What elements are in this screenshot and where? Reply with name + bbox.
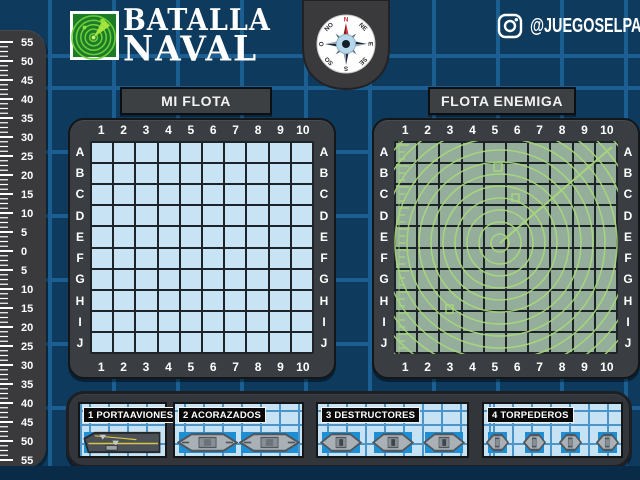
- cell-H8[interactable]: [551, 291, 571, 310]
- cell-G2[interactable]: [418, 270, 438, 289]
- cell-B1[interactable]: [396, 164, 416, 183]
- cell-E6[interactable]: [203, 227, 223, 246]
- col-label: 3: [135, 360, 157, 374]
- bottom-band: [0, 466, 640, 480]
- instagram-handle-text: @JUEGOSELPATO: [530, 15, 640, 38]
- cell-A3[interactable]: [440, 143, 460, 162]
- cell-E8[interactable]: [551, 227, 571, 246]
- cell-H9[interactable]: [574, 291, 594, 310]
- cell-D6[interactable]: [507, 206, 527, 225]
- cell-J9[interactable]: [574, 333, 594, 352]
- cell-C9[interactable]: [574, 185, 594, 204]
- cell-C10[interactable]: [596, 185, 616, 204]
- col-label: 1: [90, 360, 112, 374]
- cell-I3[interactable]: [440, 312, 460, 331]
- cell-J8[interactable]: [247, 333, 267, 352]
- row-label: I: [72, 311, 88, 332]
- col-label: 9: [269, 123, 291, 137]
- cell-D2[interactable]: [418, 206, 438, 225]
- cell-H5[interactable]: [485, 291, 505, 310]
- row-label: J: [316, 333, 332, 354]
- cell-C2[interactable]: [114, 185, 134, 204]
- cell-G4[interactable]: [159, 270, 179, 289]
- row-label: G: [72, 269, 88, 290]
- cell-A10[interactable]: [596, 143, 616, 162]
- cell-C3[interactable]: [440, 185, 460, 204]
- col-label: 5: [484, 360, 506, 374]
- col-label: 6: [202, 360, 224, 374]
- svg-text:5: 5: [21, 265, 27, 277]
- cell-D4[interactable]: [159, 206, 179, 225]
- cell-H1[interactable]: [92, 291, 112, 310]
- col-label: 3: [135, 123, 157, 137]
- ship-row: [322, 432, 463, 453]
- cell-F2[interactable]: [418, 249, 438, 268]
- enemy-fleet-title-text: FLOTA ENEMIGA: [441, 93, 563, 109]
- cell-F5[interactable]: [485, 249, 505, 268]
- cell-E6[interactable]: [507, 227, 527, 246]
- cell-I9[interactable]: [574, 312, 594, 331]
- cell-G3[interactable]: [136, 270, 156, 289]
- ship-battleship[interactable]: [179, 432, 236, 453]
- cell-E1[interactable]: [396, 227, 416, 246]
- cell-G1[interactable]: [92, 270, 112, 289]
- cell-I5[interactable]: [485, 312, 505, 331]
- col-label: 5: [180, 360, 202, 374]
- col-label: 10: [292, 360, 314, 374]
- cell-I1[interactable]: [396, 312, 416, 331]
- cell-H6[interactable]: [203, 291, 223, 310]
- cell-E5[interactable]: [181, 227, 201, 246]
- cell-E9[interactable]: [574, 227, 594, 246]
- cell-I6[interactable]: [507, 312, 527, 331]
- cell-F9[interactable]: [270, 249, 290, 268]
- cell-H7[interactable]: [529, 291, 549, 310]
- cell-F7[interactable]: [225, 249, 245, 268]
- cell-A8[interactable]: [247, 143, 267, 162]
- row-label: D: [620, 205, 636, 226]
- cell-G9[interactable]: [270, 270, 290, 289]
- cell-E7[interactable]: [225, 227, 245, 246]
- cell-I8[interactable]: [551, 312, 571, 331]
- cell-B2[interactable]: [418, 164, 438, 183]
- cell-J8[interactable]: [551, 333, 571, 352]
- cell-H9[interactable]: [270, 291, 290, 310]
- col-label: 10: [292, 123, 314, 137]
- row-label: D: [72, 205, 88, 226]
- cell-G10[interactable]: [292, 270, 312, 289]
- cell-B3[interactable]: [440, 164, 460, 183]
- cell-E1[interactable]: [92, 227, 112, 246]
- cell-C1[interactable]: [92, 185, 112, 204]
- ship-torpedo[interactable]: [525, 432, 544, 453]
- cell-J10[interactable]: [596, 333, 616, 352]
- svg-text:50: 50: [21, 436, 33, 448]
- row-label: D: [376, 205, 392, 226]
- cell-I3[interactable]: [136, 312, 156, 331]
- cell-J7[interactable]: [225, 333, 245, 352]
- cell-D7[interactable]: [225, 206, 245, 225]
- svg-text:S: S: [344, 64, 348, 71]
- cell-A4[interactable]: [159, 143, 179, 162]
- cell-B2[interactable]: [114, 164, 134, 183]
- row-label: A: [376, 141, 392, 162]
- cell-F3[interactable]: [440, 249, 460, 268]
- cell-F4[interactable]: [159, 249, 179, 268]
- cell-I4[interactable]: [159, 312, 179, 331]
- col-label: 9: [269, 360, 291, 374]
- cell-J6[interactable]: [203, 333, 223, 352]
- cell-B10[interactable]: [292, 164, 312, 183]
- cell-C3[interactable]: [136, 185, 156, 204]
- cell-G8[interactable]: [551, 270, 571, 289]
- cell-H6[interactable]: [507, 291, 527, 310]
- svg-text:25: 25: [21, 341, 33, 353]
- cell-C7[interactable]: [529, 185, 549, 204]
- cell-A6[interactable]: [203, 143, 223, 162]
- cell-C10[interactable]: [292, 185, 312, 204]
- legend-panel-label: 3 DESTRUCTORES: [321, 407, 420, 423]
- cell-D4[interactable]: [463, 206, 483, 225]
- cell-J3[interactable]: [440, 333, 460, 352]
- cell-H3[interactable]: [440, 291, 460, 310]
- cell-B9[interactable]: [574, 164, 594, 183]
- ship-torpedo[interactable]: [488, 432, 507, 453]
- cell-grid: [394, 141, 618, 354]
- ship-torpedo[interactable]: [598, 432, 617, 453]
- cell-G3[interactable]: [440, 270, 460, 289]
- compass-rose-icon: NNEESESSOONO: [302, 0, 390, 92]
- cell-G6[interactable]: [507, 270, 527, 289]
- cell-A6[interactable]: [507, 143, 527, 162]
- cell-D2[interactable]: [114, 206, 134, 225]
- col-label: 9: [573, 360, 595, 374]
- cell-B1[interactable]: [92, 164, 112, 183]
- cell-I1[interactable]: [92, 312, 112, 331]
- row-label: H: [620, 290, 636, 311]
- cell-J2[interactable]: [418, 333, 438, 352]
- cell-A1[interactable]: [396, 143, 416, 162]
- cell-E3[interactable]: [440, 227, 460, 246]
- cell-D10[interactable]: [292, 206, 312, 225]
- cell-C5[interactable]: [485, 185, 505, 204]
- cell-H4[interactable]: [463, 291, 483, 310]
- cell-B6[interactable]: [203, 164, 223, 183]
- cell-B7[interactable]: [529, 164, 549, 183]
- col-label: 2: [416, 360, 438, 374]
- cell-B8[interactable]: [551, 164, 571, 183]
- cell-A2[interactable]: [418, 143, 438, 162]
- cell-I6[interactable]: [203, 312, 223, 331]
- row-label: A: [620, 141, 636, 162]
- cell-J4[interactable]: [463, 333, 483, 352]
- row-label: E: [376, 226, 392, 247]
- col-label: 2: [416, 123, 438, 137]
- cell-F9[interactable]: [574, 249, 594, 268]
- cell-E7[interactable]: [529, 227, 549, 246]
- svg-text:5: 5: [21, 227, 27, 239]
- cell-G9[interactable]: [574, 270, 594, 289]
- cell-D10[interactable]: [596, 206, 616, 225]
- cell-A7[interactable]: [529, 143, 549, 162]
- cell-D3[interactable]: [440, 206, 460, 225]
- ship-destroyer[interactable]: [322, 432, 360, 453]
- svg-text:55: 55: [21, 37, 33, 49]
- cell-B6[interactable]: [507, 164, 527, 183]
- cell-E3[interactable]: [136, 227, 156, 246]
- row-label: F: [72, 247, 88, 268]
- cell-A9[interactable]: [270, 143, 290, 162]
- svg-text:20: 20: [21, 322, 33, 334]
- cell-E9[interactable]: [270, 227, 290, 246]
- cell-J5[interactable]: [485, 333, 505, 352]
- cell-C2[interactable]: [418, 185, 438, 204]
- my-fleet-board: 1234567891012345678910ABCDEFGHIJABCDEFGH…: [68, 118, 336, 379]
- cell-D7[interactable]: [529, 206, 549, 225]
- cell-D8[interactable]: [247, 206, 267, 225]
- svg-text:30: 30: [21, 360, 33, 372]
- cell-I10[interactable]: [292, 312, 312, 331]
- ship-battleship[interactable]: [241, 432, 298, 453]
- col-label: 1: [394, 360, 416, 374]
- cell-C4[interactable]: [463, 185, 483, 204]
- cell-F10[interactable]: [292, 249, 312, 268]
- cell-A9[interactable]: [574, 143, 594, 162]
- ship-torpedo[interactable]: [561, 432, 580, 453]
- svg-text:25: 25: [21, 151, 33, 163]
- row-label: D: [316, 205, 332, 226]
- svg-text:50: 50: [21, 56, 33, 68]
- row-label: G: [376, 269, 392, 290]
- cell-G10[interactable]: [596, 270, 616, 289]
- cell-J5[interactable]: [181, 333, 201, 352]
- cell-B3[interactable]: [136, 164, 156, 183]
- cell-B8[interactable]: [247, 164, 267, 183]
- cell-H10[interactable]: [596, 291, 616, 310]
- row-labels-left: ABCDEFGHIJ: [72, 141, 88, 354]
- ship-destroyer[interactable]: [374, 432, 412, 453]
- cell-D9[interactable]: [574, 206, 594, 225]
- cell-A4[interactable]: [463, 143, 483, 162]
- col-label: 4: [157, 123, 179, 137]
- social-handle[interactable]: @JUEGOSELPATO: [497, 13, 640, 39]
- cell-B9[interactable]: [270, 164, 290, 183]
- cell-G4[interactable]: [463, 270, 483, 289]
- cell-A1[interactable]: [92, 143, 112, 162]
- cell-I9[interactable]: [270, 312, 290, 331]
- cell-D1[interactable]: [92, 206, 112, 225]
- cell-F6[interactable]: [507, 249, 527, 268]
- ship-destroyer[interactable]: [425, 432, 463, 453]
- column-labels-top: 12345678910: [394, 123, 618, 137]
- col-label: 6: [506, 360, 528, 374]
- cell-H8[interactable]: [247, 291, 267, 310]
- col-label: 5: [484, 123, 506, 137]
- cell-I2[interactable]: [114, 312, 134, 331]
- svg-text:O: O: [319, 41, 326, 46]
- cell-F7[interactable]: [529, 249, 549, 268]
- cell-G7[interactable]: [225, 270, 245, 289]
- cell-G6[interactable]: [203, 270, 223, 289]
- svg-text:15: 15: [21, 189, 33, 201]
- cell-B4[interactable]: [463, 164, 483, 183]
- ship-carrier[interactable]: [84, 432, 160, 453]
- cell-H4[interactable]: [159, 291, 179, 310]
- cell-E4[interactable]: [159, 227, 179, 246]
- cell-D8[interactable]: [551, 206, 571, 225]
- row-label: H: [72, 290, 88, 311]
- cell-D6[interactable]: [203, 206, 223, 225]
- cell-F5[interactable]: [181, 249, 201, 268]
- cell-H1[interactable]: [396, 291, 416, 310]
- svg-text:45: 45: [21, 417, 33, 429]
- cell-A8[interactable]: [551, 143, 571, 162]
- col-label: 7: [528, 360, 550, 374]
- row-label: C: [316, 184, 332, 205]
- cell-C8[interactable]: [247, 185, 267, 204]
- cell-C5[interactable]: [181, 185, 201, 204]
- cell-C8[interactable]: [551, 185, 571, 204]
- enemy-fleet-board: 1234567891012345678910ABCDEFGHIJABCDEFGH…: [372, 118, 640, 379]
- cell-H2[interactable]: [418, 291, 438, 310]
- legend-panel-carrier: 1 PORTAAVIONES: [78, 402, 167, 458]
- cell-F2[interactable]: [114, 249, 134, 268]
- ship-row: [179, 432, 298, 453]
- cell-D3[interactable]: [136, 206, 156, 225]
- cell-I7[interactable]: [529, 312, 549, 331]
- cell-E8[interactable]: [247, 227, 267, 246]
- cell-J9[interactable]: [270, 333, 290, 352]
- cell-H3[interactable]: [136, 291, 156, 310]
- depth-ruler: 5550454035302520151050510152025303540455…: [0, 30, 46, 468]
- cell-F6[interactable]: [203, 249, 223, 268]
- cell-D9[interactable]: [270, 206, 290, 225]
- cell-F1[interactable]: [92, 249, 112, 268]
- cell-H7[interactable]: [225, 291, 245, 310]
- cell-C6[interactable]: [507, 185, 527, 204]
- col-label: 1: [394, 123, 416, 137]
- cell-J2[interactable]: [114, 333, 134, 352]
- ship-row: [84, 432, 161, 453]
- cell-F4[interactable]: [463, 249, 483, 268]
- my-fleet-title-text: MI FLOTA: [161, 93, 231, 109]
- svg-text:45: 45: [21, 75, 33, 87]
- cell-C1[interactable]: [396, 185, 416, 204]
- cell-C4[interactable]: [159, 185, 179, 204]
- row-label: I: [620, 311, 636, 332]
- cell-H5[interactable]: [181, 291, 201, 310]
- cell-G2[interactable]: [114, 270, 134, 289]
- cell-F8[interactable]: [551, 249, 571, 268]
- cell-D1[interactable]: [396, 206, 416, 225]
- cell-J1[interactable]: [396, 333, 416, 352]
- column-labels-bottom: 12345678910: [90, 360, 314, 374]
- cell-G1[interactable]: [396, 270, 416, 289]
- cell-grid: [90, 141, 314, 354]
- col-label: 8: [247, 123, 269, 137]
- cell-J6[interactable]: [507, 333, 527, 352]
- cell-B7[interactable]: [225, 164, 245, 183]
- cell-I7[interactable]: [225, 312, 245, 331]
- instagram-icon: [497, 13, 523, 39]
- cell-F1[interactable]: [396, 249, 416, 268]
- legend-panel-torpedo: 4 TORPEDEROS: [482, 402, 623, 458]
- fleet-legend: 1 PORTAAVIONES 2 ACORAZADOS 3 DESTRUCTOR…: [66, 391, 632, 468]
- legend-panel-label: 2 ACORAZADOS: [178, 407, 266, 423]
- cell-F10[interactable]: [596, 249, 616, 268]
- cell-I10[interactable]: [596, 312, 616, 331]
- radar-logo-icon: [70, 11, 119, 60]
- cell-I5[interactable]: [181, 312, 201, 331]
- svg-text:35: 35: [21, 113, 33, 125]
- col-label: 4: [461, 123, 483, 137]
- cell-C7[interactable]: [225, 185, 245, 204]
- cell-B4[interactable]: [159, 164, 179, 183]
- cell-F3[interactable]: [136, 249, 156, 268]
- col-label: 2: [112, 123, 134, 137]
- cell-E10[interactable]: [596, 227, 616, 246]
- cell-A10[interactable]: [292, 143, 312, 162]
- cell-B10[interactable]: [596, 164, 616, 183]
- cell-G5[interactable]: [181, 270, 201, 289]
- row-label: I: [316, 311, 332, 332]
- cell-E5[interactable]: [485, 227, 505, 246]
- legend-panel-label: 1 PORTAAVIONES: [83, 407, 178, 423]
- cell-H10[interactable]: [292, 291, 312, 310]
- svg-text:40: 40: [21, 398, 33, 410]
- cell-G7[interactable]: [529, 270, 549, 289]
- row-label: A: [72, 141, 88, 162]
- cell-A5[interactable]: [181, 143, 201, 162]
- row-label: C: [376, 184, 392, 205]
- cell-I2[interactable]: [418, 312, 438, 331]
- col-label: 9: [573, 123, 595, 137]
- cell-I4[interactable]: [463, 312, 483, 331]
- cell-E2[interactable]: [418, 227, 438, 246]
- cell-F8[interactable]: [247, 249, 267, 268]
- game-table: 5550454035302520151050510152025303540455…: [0, 0, 640, 480]
- cell-J10[interactable]: [292, 333, 312, 352]
- cell-G8[interactable]: [247, 270, 267, 289]
- cell-J1[interactable]: [92, 333, 112, 352]
- cell-J4[interactable]: [159, 333, 179, 352]
- cell-D5[interactable]: [485, 206, 505, 225]
- row-label: B: [376, 162, 392, 183]
- col-label: 5: [180, 123, 202, 137]
- cell-A7[interactable]: [225, 143, 245, 162]
- cell-B5[interactable]: [485, 164, 505, 183]
- cell-G5[interactable]: [485, 270, 505, 289]
- cell-E10[interactable]: [292, 227, 312, 246]
- row-label: J: [620, 333, 636, 354]
- cell-E2[interactable]: [114, 227, 134, 246]
- cell-D5[interactable]: [181, 206, 201, 225]
- col-label: 8: [551, 123, 573, 137]
- cell-A2[interactable]: [114, 143, 134, 162]
- cell-J3[interactable]: [136, 333, 156, 352]
- cell-C9[interactable]: [270, 185, 290, 204]
- cell-I8[interactable]: [247, 312, 267, 331]
- cell-J7[interactable]: [529, 333, 549, 352]
- cell-C6[interactable]: [203, 185, 223, 204]
- cell-A3[interactable]: [136, 143, 156, 162]
- cell-H2[interactable]: [114, 291, 134, 310]
- row-label: B: [72, 162, 88, 183]
- col-label: 4: [461, 360, 483, 374]
- cell-E4[interactable]: [463, 227, 483, 246]
- cell-A5[interactable]: [485, 143, 505, 162]
- cell-B5[interactable]: [181, 164, 201, 183]
